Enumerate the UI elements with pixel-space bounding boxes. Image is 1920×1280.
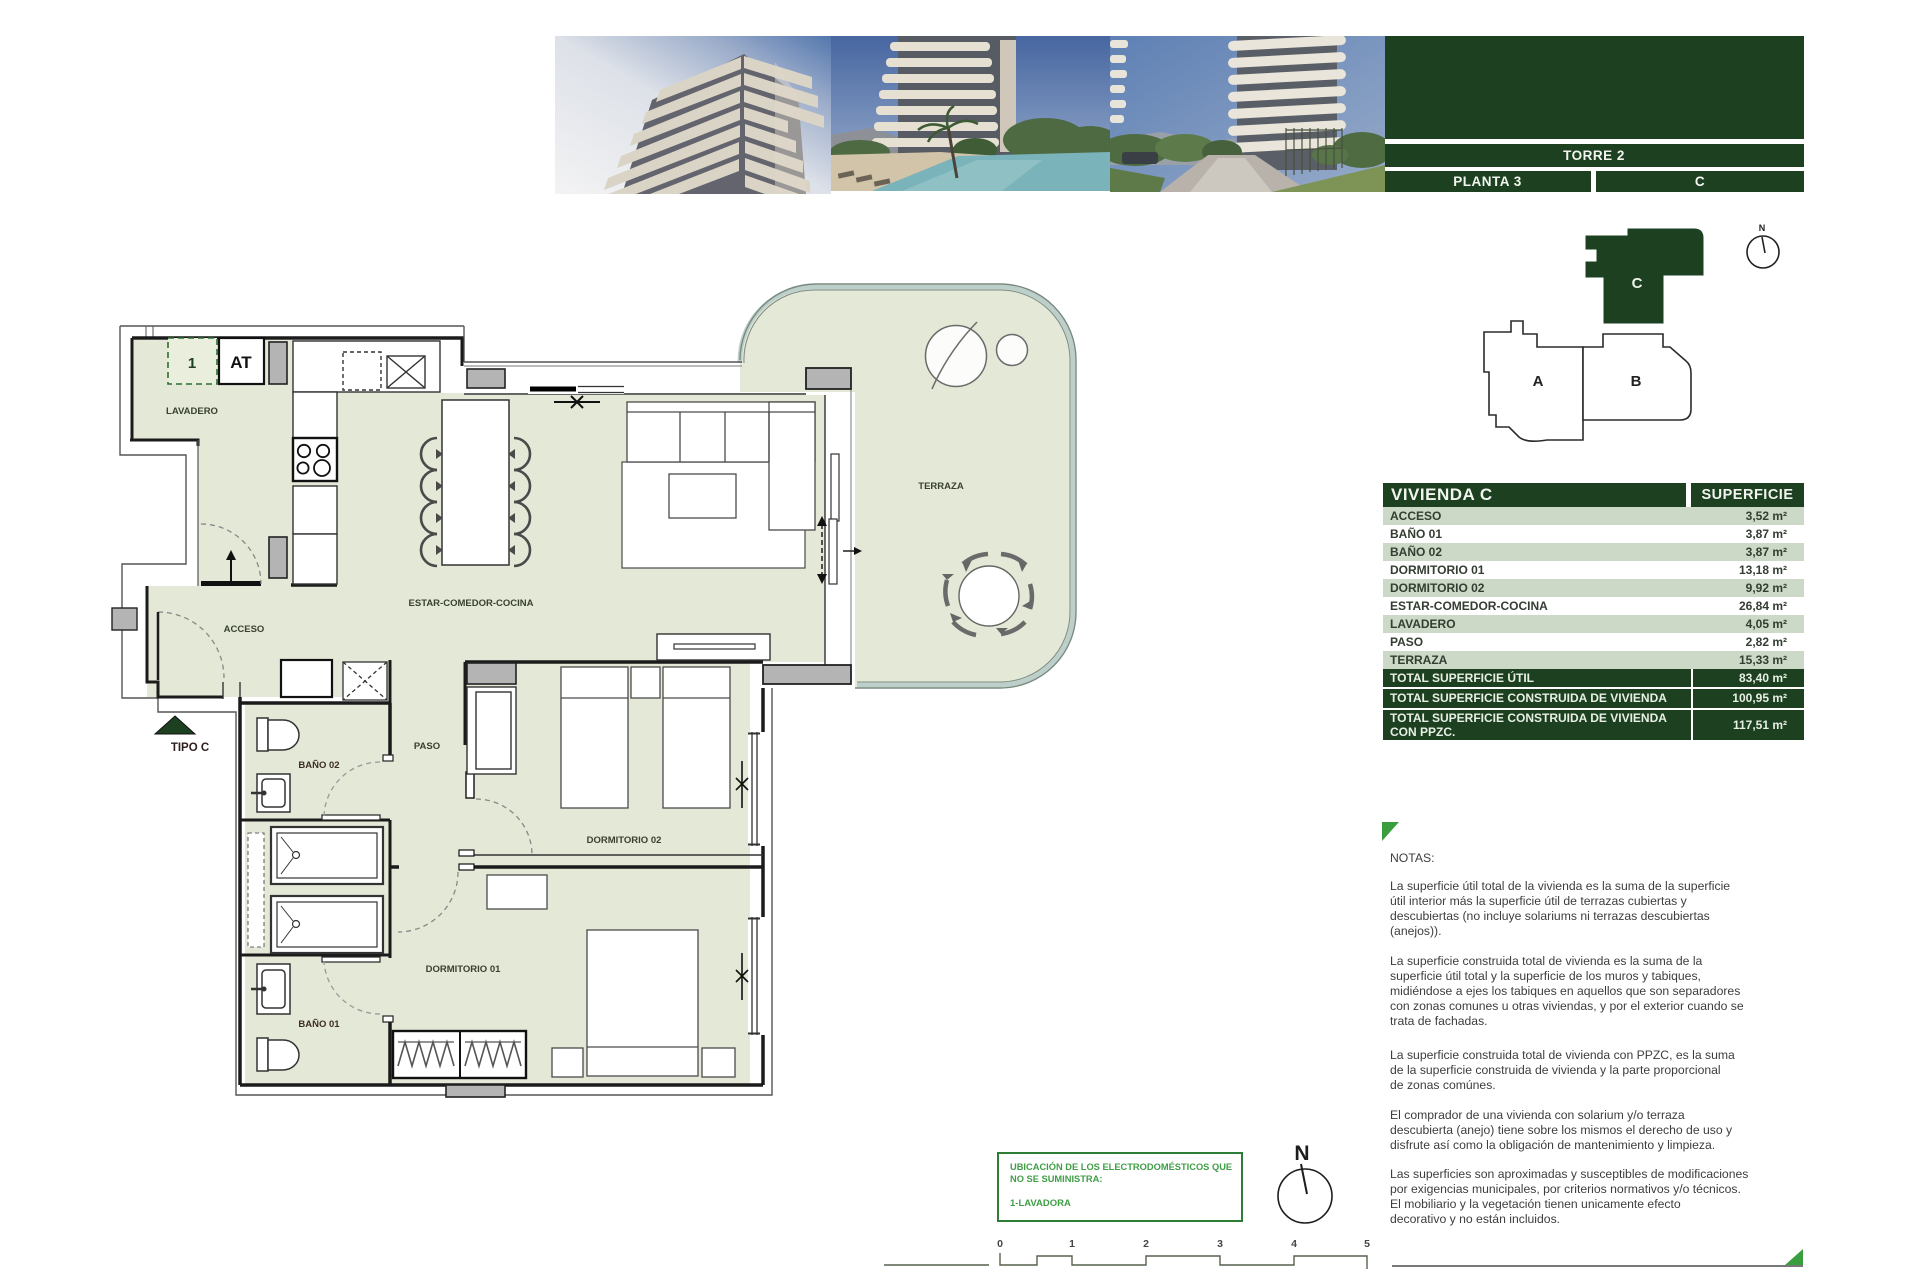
svg-text:DORMITORIO 01: DORMITORIO 01	[426, 964, 501, 975]
svg-text:BAÑO 02: BAÑO 02	[298, 760, 339, 771]
svg-text:BAÑO 01: BAÑO 01	[298, 1019, 340, 1030]
svg-text:LAVADERO: LAVADERO	[166, 406, 218, 417]
svg-text:DORMITORIO 02: DORMITORIO 02	[587, 835, 662, 846]
svg-text:ACCESO: ACCESO	[224, 624, 265, 635]
svg-text:ESTAR-COMEDOR-COCINA: ESTAR-COMEDOR-COCINA	[409, 598, 534, 609]
svg-text:TERRAZA: TERRAZA	[918, 481, 964, 492]
svg-text:AT: AT	[230, 353, 252, 372]
svg-text:PASO: PASO	[414, 741, 440, 752]
svg-text:TIPO C: TIPO C	[171, 742, 209, 754]
svg-text:1: 1	[188, 355, 196, 372]
